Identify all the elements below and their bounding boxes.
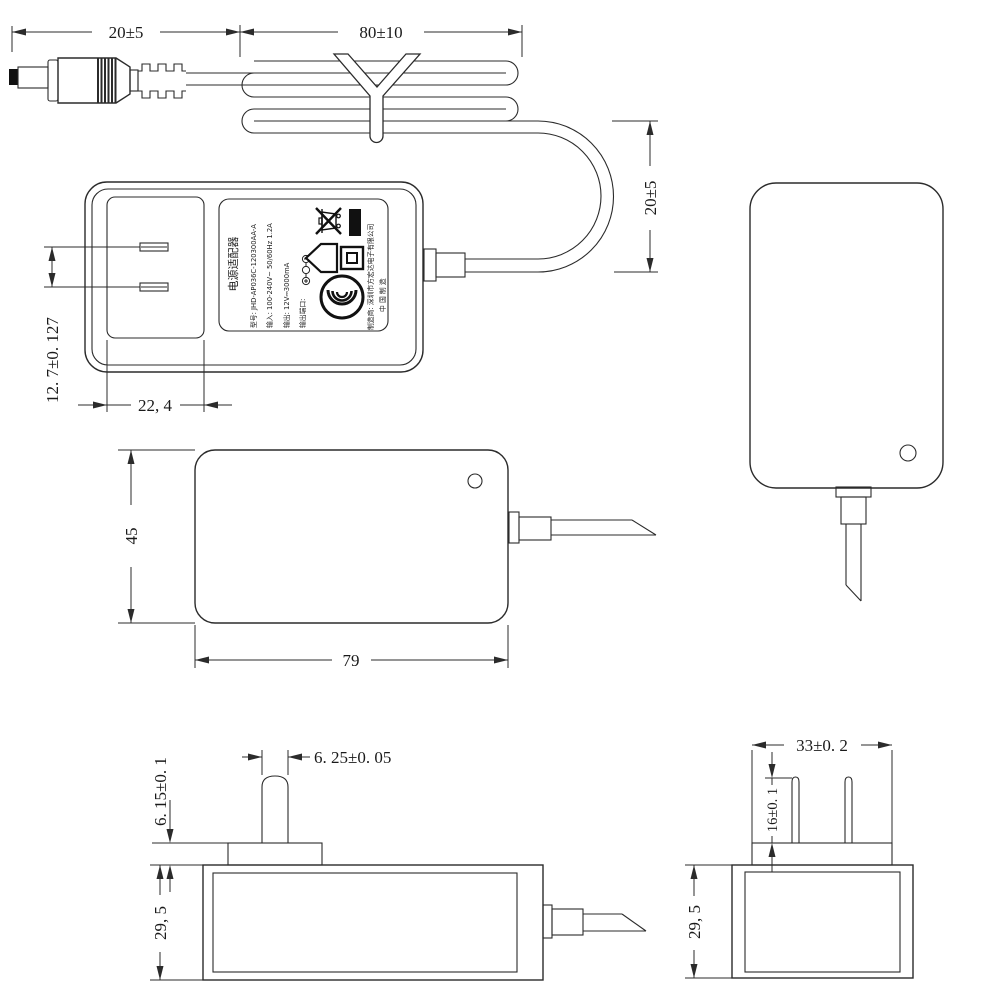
pentagon-arrow-icon	[306, 244, 337, 272]
strain-relief-flange-profile	[543, 905, 552, 938]
cable-profile	[583, 914, 646, 931]
label-input: 输入: 100-240V~ 50/60Hz 1.2A	[265, 223, 274, 328]
side-view	[195, 450, 656, 623]
dim-text-loop-height: 20±5	[641, 181, 660, 216]
dim-body-length: 79	[195, 625, 508, 670]
dim-boss-height: 6. 15±0. 1	[150, 757, 228, 892]
end-body	[732, 865, 913, 978]
dim-prong-blade-width: 6. 25±0. 05	[242, 748, 391, 775]
prong-recess	[107, 197, 204, 338]
strain-relief-boot-back	[841, 497, 866, 524]
prong-blade-profile	[262, 776, 288, 843]
weee-icon	[316, 208, 341, 234]
dim-text-body-thickness-end: 29, 5	[685, 905, 704, 939]
cable-loop-outer	[465, 121, 614, 272]
cable-loop-inner	[465, 133, 601, 259]
strain-relief-boot-side	[519, 517, 551, 540]
dim-body-width: 45	[118, 450, 195, 623]
led-hole	[468, 474, 482, 488]
dim-text-coil-length: 80±10	[359, 23, 402, 42]
dim-body-thickness-end: 29, 5	[685, 865, 732, 978]
dim-text-prong-length: 16±0. 1	[765, 788, 781, 832]
dc-strain-relief-ribs	[138, 64, 186, 71]
strain-relief-boot	[436, 253, 465, 277]
label-output: 输出: 12V⎓3000mA	[282, 262, 291, 328]
end-profile-view	[732, 777, 913, 978]
class-ii-icon	[341, 247, 363, 269]
dim-cable-loop-height: 20±5	[612, 121, 660, 272]
technical-drawing-page: 20±5 80±10	[0, 0, 1000, 1000]
prong-left-end	[792, 777, 799, 843]
label-origin: 中 国 制 造	[378, 278, 387, 312]
dim-dc-plug-length: 20±5	[12, 23, 240, 57]
dc-plug-knurling	[98, 58, 116, 103]
strain-relief-boot-profile	[552, 909, 583, 935]
cable-back	[846, 524, 861, 601]
label-title: 电源适配器	[226, 237, 240, 292]
bottom-profile-view	[203, 776, 646, 980]
strain-relief-flange	[424, 249, 436, 281]
adapter-body-back	[750, 183, 943, 488]
weee-bar-icon	[349, 209, 361, 236]
dim-text-body-length: 79	[343, 651, 360, 670]
adapter-body-side	[195, 450, 508, 623]
strain-relief-flange-side	[509, 512, 519, 543]
prong-boss	[228, 843, 322, 865]
label-manufacturer: 制造商: 深圳市方宏达电子有限公司	[366, 223, 375, 330]
dim-text-prong-pitch: 12. 7±0. 127	[43, 317, 62, 403]
dc-plug-body	[58, 58, 130, 103]
back-view	[750, 183, 943, 601]
led-hole-back	[900, 445, 916, 461]
dc-plug-tip	[9, 69, 18, 85]
profile-body	[203, 865, 543, 980]
prong-slot-upper	[140, 243, 168, 251]
dim-coil-length: 80±10	[240, 23, 522, 57]
front-view: 电源适配器 型号: JHD-AP036C-120300AA-A 输入: 100-…	[85, 182, 465, 372]
adapter-drawing: 20±5 80±10	[0, 0, 1000, 1000]
prong-slot-lower	[140, 283, 168, 291]
dim-text-body-thickness: 29, 5	[151, 906, 170, 940]
dim-recess-width: 22, 4	[78, 340, 232, 415]
ccc-icon	[321, 276, 363, 318]
dim-text-recess-width: 22, 4	[138, 396, 173, 415]
prong-right-end	[845, 777, 852, 843]
label-output-port: 输出端口:	[298, 299, 307, 328]
dim-prong-length: 16±0. 1	[765, 752, 792, 872]
dc-connector	[9, 58, 186, 103]
dim-text-boss-height: 6. 15±0. 1	[151, 757, 170, 826]
dim-text-body-width: 45	[122, 528, 141, 545]
dim-text-plug-length: 20±5	[109, 23, 144, 42]
dim-body-thickness: 29, 5	[150, 865, 203, 980]
cable-tie	[334, 54, 420, 143]
dim-text-head-width: 33±0. 2	[796, 736, 848, 755]
dim-text-prong-blade-width: 6. 25±0. 05	[314, 748, 391, 767]
product-label: 电源适配器 型号: JHD-AP036C-120300AA-A 输入: 100-…	[219, 199, 388, 331]
cable-side	[551, 520, 656, 535]
dc-plug-barrel	[18, 67, 48, 88]
label-model: 型号: JHD-AP036C-120300AA-A	[249, 224, 258, 328]
